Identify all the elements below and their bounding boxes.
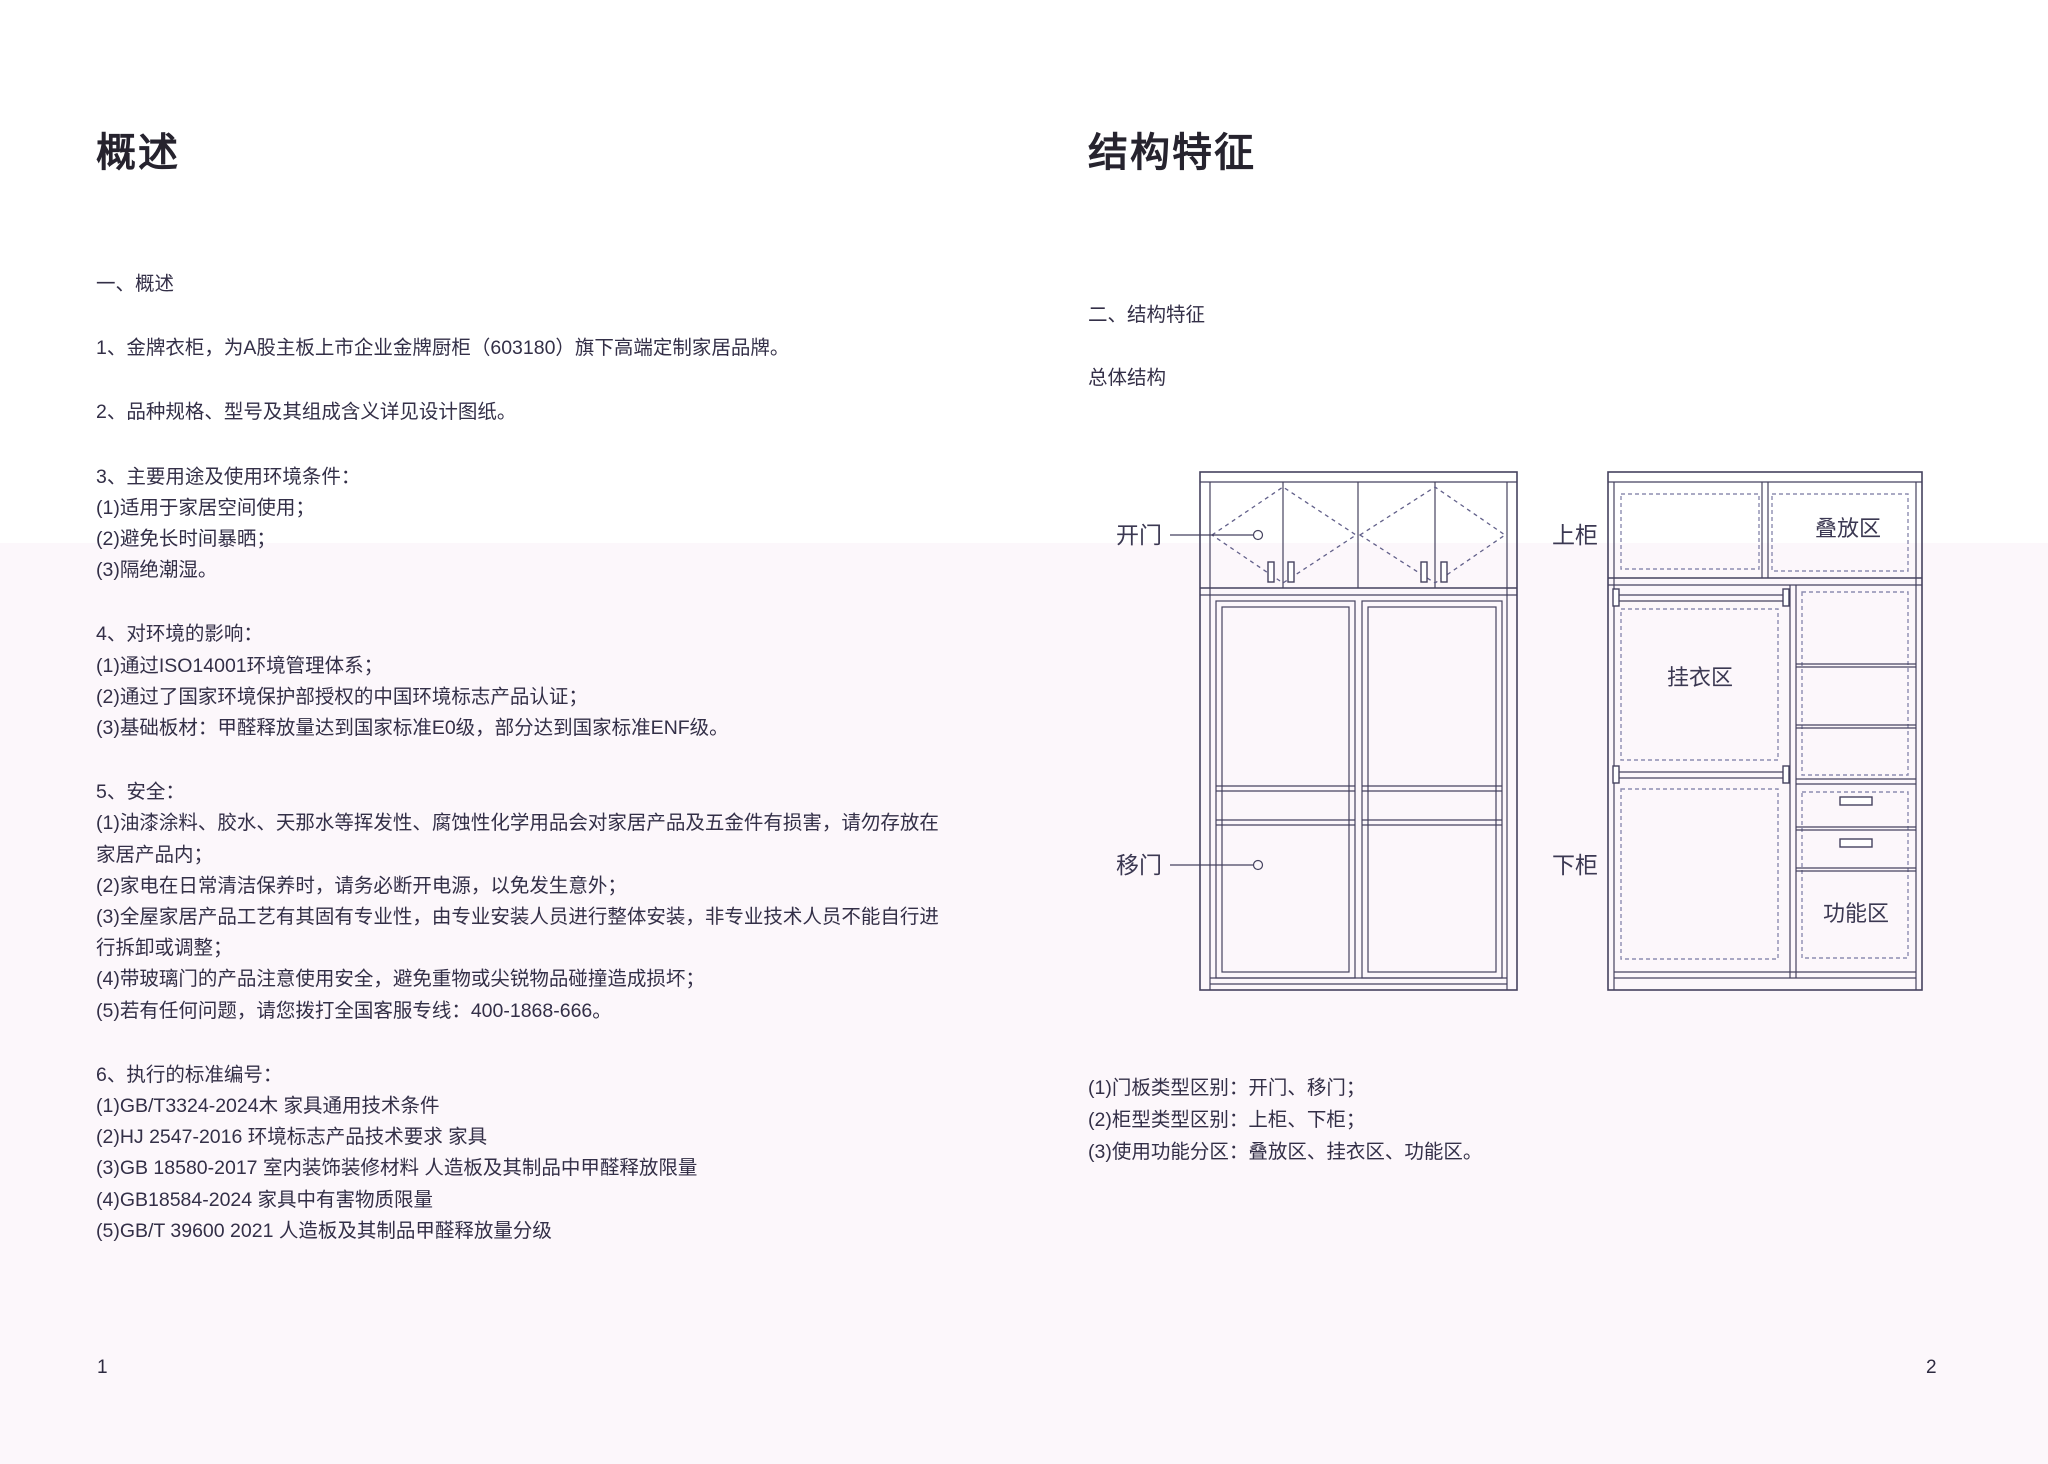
- text-line: (1)GB/T3324-2024木 家具通用技术条件: [96, 1091, 1076, 1122]
- wardrobe-diagram: 开门 移门 上柜 下柜 叠放区 挂衣区 功能区: [1100, 460, 1980, 1030]
- text-line: (2)避免长时间暴晒；: [96, 524, 1076, 555]
- leader-dot: [1254, 531, 1263, 540]
- door-handle: [1421, 562, 1427, 582]
- text-line: (5)若有任何问题，请您拨打全国客服专线：400-1868-666。: [96, 996, 1076, 1027]
- text-line: (2)通过了国家环境保护部授权的中国环境标志产品认证；: [96, 682, 1076, 713]
- text-line: (1)门板类型区别：开门、移门；: [1088, 1072, 1482, 1104]
- text-line: (3)使用功能分区：叠放区、挂衣区、功能区。: [1088, 1136, 1482, 1168]
- manual-spread: 概述 一、概述1、金牌衣柜，为A股主板上市企业金牌厨柜（603180）旗下高端定…: [0, 0, 2048, 1464]
- text-line: (1)适用于家居空间使用；: [96, 493, 1076, 524]
- leader-dot: [1254, 861, 1263, 870]
- text-line: (2)HJ 2547-2016 环境标志产品技术要求 家具: [96, 1122, 1076, 1153]
- right-page-number: 2: [1926, 1357, 1937, 1379]
- text-line: 行拆卸或调整；: [96, 933, 1076, 964]
- text-line: (4)GB18584-2024 家具中有害物质限量: [96, 1185, 1076, 1216]
- label-stacking-zone: 叠放区: [1815, 516, 1881, 541]
- label-lower-cabinet: 下柜: [1552, 852, 1598, 878]
- text-line: 6、执行的标准编号：: [96, 1060, 1076, 1091]
- door-handle: [1268, 562, 1274, 582]
- right-page-title: 结构特征: [1088, 120, 1256, 178]
- paragraph: 3、主要用途及使用环境条件：(1)适用于家居空间使用；(2)避免长时间暴晒；(3…: [96, 462, 1076, 587]
- text-line: (2)柜型类型区别：上柜、下柜；: [1088, 1104, 1482, 1136]
- right-cabinet-rods-shelves: [1613, 589, 1916, 871]
- rod-end-cap: [1783, 589, 1789, 606]
- paragraph: 5、安全：(1)油漆涂料、胶水、天那水等挥发性、腐蚀性化学用品会对家居产品及五金…: [96, 777, 1076, 1027]
- left-cabinet-top-doors: [1212, 482, 1505, 588]
- label-upper-cabinet: 上柜: [1552, 522, 1598, 548]
- paragraph: 2、品种规格、型号及其组成含义详见设计图纸。: [96, 397, 1076, 428]
- paragraph: 4、对环境的影响：(1)通过ISO14001环境管理体系；(2)通过了国家环境保…: [96, 619, 1076, 744]
- label-function-zone: 功能区: [1823, 901, 1889, 926]
- door-handle: [1288, 562, 1294, 582]
- text-line: 2、品种规格、型号及其组成含义详见设计图纸。: [96, 397, 1076, 428]
- text-line: 3、主要用途及使用环境条件：: [96, 462, 1076, 493]
- rod-end-cap: [1613, 589, 1619, 606]
- subsection-heading: 总体结构: [1088, 363, 1166, 394]
- text-line: 1、金牌衣柜，为A股主板上市企业金牌厨柜（603180）旗下高端定制家居品牌。: [96, 333, 1076, 364]
- drawer-handle: [1840, 797, 1872, 805]
- left-page-number: 1: [97, 1357, 108, 1379]
- text-line: 5、安全：: [96, 777, 1076, 808]
- paragraph: 1、金牌衣柜，为A股主板上市企业金牌厨柜（603180）旗下高端定制家居品牌。: [96, 333, 1076, 364]
- text-line: (3)隔绝潮湿。: [96, 555, 1076, 586]
- text-line: 一、概述: [96, 269, 1076, 300]
- text-line: (4)带玻璃门的产品注意使用安全，避免重物或尖锐物品碰撞造成损坏；: [96, 964, 1076, 995]
- text-line: 家居产品内；: [96, 840, 1076, 871]
- overview-text-column: 一、概述1、金牌衣柜，为A股主板上市企业金牌厨柜（603180）旗下高端定制家居…: [96, 269, 1076, 1280]
- left-page-title: 概述: [96, 120, 180, 178]
- text-line: (1)通过ISO14001环境管理体系；: [96, 651, 1076, 682]
- label-sliding-door: 移门: [1116, 852, 1162, 878]
- door-handle: [1441, 562, 1447, 582]
- left-cabinet-sliding-doors: [1216, 601, 1502, 978]
- text-line: (1)油漆涂料、胶水、天那水等挥发性、腐蚀性化学用品会对家居产品及五金件有损害，…: [96, 808, 1076, 839]
- label-hinged-door: 开门: [1116, 522, 1162, 548]
- text-line: (5)GB/T 39600 2021 人造板及其制品甲醛释放量分级: [96, 1216, 1076, 1247]
- structure-notes: (1)门板类型区别：开门、移门；(2)柜型类型区别：上柜、下柜；(3)使用功能分…: [1088, 1072, 1482, 1168]
- text-line: 4、对环境的影响：: [96, 619, 1076, 650]
- right-cabinet-zone-boxes: [1621, 494, 1908, 959]
- section-heading: 二、结构特征: [1088, 300, 1205, 331]
- paragraph: 6、执行的标准编号：(1)GB/T3324-2024木 家具通用技术条件(2)H…: [96, 1060, 1076, 1247]
- door-swing-marker: [1360, 487, 1505, 583]
- rod-end-cap: [1613, 766, 1619, 783]
- paragraph: 一、概述: [96, 269, 1076, 300]
- drawer-handle: [1840, 839, 1872, 847]
- label-hanging-zone: 挂衣区: [1667, 665, 1733, 690]
- text-line: (3)基础板材：甲醛释放量达到国家标准E0级，部分达到国家标准ENF级。: [96, 713, 1076, 744]
- rod-end-cap: [1783, 766, 1789, 783]
- text-line: (2)家电在日常清洁保养时，请务必断开电源，以免发生意外；: [96, 871, 1076, 902]
- text-line: (3)GB 18580-2017 室内装饰装修材料 人造板及其制品中甲醛释放限量: [96, 1153, 1076, 1184]
- text-line: (3)全屋家居产品工艺有其固有专业性，由专业安装人员进行整体安装，非专业技术人员…: [96, 902, 1076, 933]
